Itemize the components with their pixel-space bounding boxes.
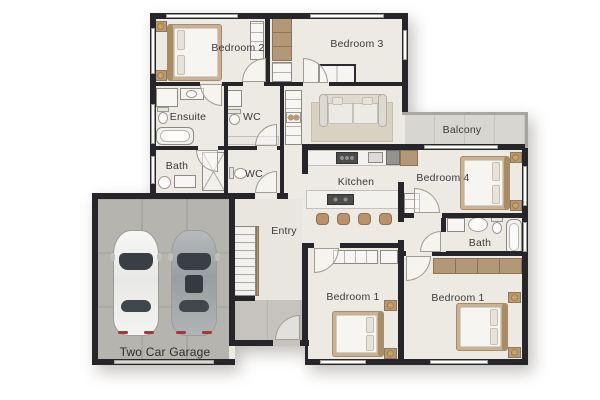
dresser	[380, 250, 398, 264]
room-label-bedroom-3: Bedroom 3	[330, 38, 383, 50]
window	[166, 14, 238, 18]
room-label-bedroom-1-right: Bedroom 1	[431, 292, 484, 304]
toilet-bowl	[158, 112, 168, 124]
bar-stool	[358, 213, 371, 225]
wardrobe-bedroom-1-right	[433, 258, 523, 274]
lamp-icon	[511, 349, 518, 356]
shelf-bedroom-3	[272, 62, 292, 82]
kitchen-sink	[368, 152, 383, 163]
closet-bedroom-2	[250, 21, 264, 60]
window	[430, 360, 488, 364]
door-opening	[255, 193, 277, 199]
room-label-entry: Entry	[271, 225, 297, 237]
window	[310, 14, 384, 18]
room-label-bath-left: Bath	[166, 160, 188, 172]
lamp-icon	[512, 154, 519, 161]
wall	[224, 82, 228, 150]
door-arc	[303, 58, 328, 83]
wall	[229, 296, 255, 301]
sofa-pillow	[332, 97, 343, 105]
shower	[156, 88, 178, 107]
car-white	[113, 230, 159, 336]
kitchen-island	[306, 190, 402, 209]
room-label-bedroom-4: Bedroom 4	[416, 172, 469, 184]
room-label-ensuite: Ensuite	[170, 111, 206, 123]
door-arc	[200, 84, 222, 106]
door-arc	[196, 150, 218, 172]
door-arc	[255, 124, 277, 146]
car-silver	[171, 230, 217, 336]
door-arc	[314, 248, 339, 273]
floor-plan-building: Bedroom 2 Bedroom 3 Ensuite WC Bath WC B…	[0, 0, 600, 400]
pantry-cabinet	[400, 150, 418, 166]
room-label-wc-upper: WC	[243, 111, 261, 123]
bed-bedroom-1-left	[332, 311, 384, 357]
window	[523, 166, 527, 206]
garage-door	[114, 360, 214, 364]
wall	[398, 248, 404, 365]
building-shadow: Bedroom 2 Bedroom 3 Ensuite WC Bath WC B…	[0, 0, 600, 400]
laundry-appliance	[286, 112, 301, 123]
wall	[302, 144, 308, 174]
door-opening	[243, 82, 264, 86]
door-opening	[414, 213, 442, 218]
door-arc	[406, 256, 431, 281]
bar-stool	[337, 213, 350, 225]
sink-basin	[468, 217, 488, 232]
wall	[402, 13, 408, 115]
room-label-garage: Two Car Garage	[120, 345, 211, 359]
toilet-bowl	[229, 114, 240, 125]
vanity-sink	[447, 218, 465, 232]
fridge	[386, 150, 400, 165]
staircase	[233, 226, 256, 296]
toilet-bowl	[492, 222, 502, 234]
lamp-icon	[387, 302, 394, 309]
floor-plan-canvas: Bedroom 2 Bedroom 3 Ensuite WC Bath WC B…	[0, 0, 600, 400]
room-label-bath-right: Bath	[469, 237, 491, 249]
sofa-pillow	[362, 97, 373, 105]
lamp-icon	[387, 350, 394, 357]
window	[523, 222, 527, 252]
bar-stool	[379, 213, 392, 225]
window	[151, 156, 155, 184]
closet-bedroom-1-left	[333, 250, 378, 264]
door-arc	[242, 58, 266, 82]
window	[151, 104, 155, 144]
wall	[92, 193, 98, 365]
sofa-arm	[378, 94, 387, 127]
wall	[224, 150, 228, 197]
wall	[302, 244, 308, 365]
wardrobe-bedroom-3	[272, 17, 292, 61]
window	[151, 28, 155, 74]
lamp-icon	[512, 202, 519, 209]
vanity-sink	[174, 175, 196, 188]
bar-stool	[316, 213, 329, 225]
lamp-icon	[157, 72, 164, 79]
stair-rail	[256, 226, 259, 296]
sliding-door	[424, 145, 498, 149]
wc-cabinet	[227, 90, 242, 107]
room-label-wc-lower: WC	[245, 168, 263, 180]
bathtub-basin	[160, 130, 190, 142]
sofa-cushion	[353, 103, 378, 124]
room-label-balcony: Balcony	[443, 124, 482, 136]
door-arc	[414, 188, 440, 213]
room-label-kitchen: Kitchen	[338, 176, 374, 188]
bathtub-basin	[509, 223, 519, 251]
sofa-arm	[319, 94, 328, 127]
window	[403, 30, 407, 60]
stove	[336, 152, 358, 164]
wall	[268, 82, 408, 86]
bed-bedroom-1-right	[456, 303, 508, 351]
wall	[229, 193, 235, 346]
room-label-bedroom-1-left: Bedroom 1	[326, 291, 379, 303]
cooktop	[327, 194, 354, 205]
balcony-railing	[525, 112, 528, 148]
balcony-railing	[402, 112, 528, 115]
lamp-icon	[157, 23, 164, 30]
sink-basin	[158, 176, 171, 189]
window	[320, 360, 366, 364]
sink-basin	[186, 90, 197, 98]
door-arc	[420, 231, 441, 252]
wall	[280, 82, 284, 199]
door-opening	[441, 232, 446, 252]
door-opening	[273, 340, 300, 346]
lamp-icon	[511, 294, 518, 301]
room-label-bedroom-2: Bedroom 2	[211, 42, 264, 54]
sofa-cushion	[328, 103, 353, 124]
door-opening	[257, 146, 277, 150]
